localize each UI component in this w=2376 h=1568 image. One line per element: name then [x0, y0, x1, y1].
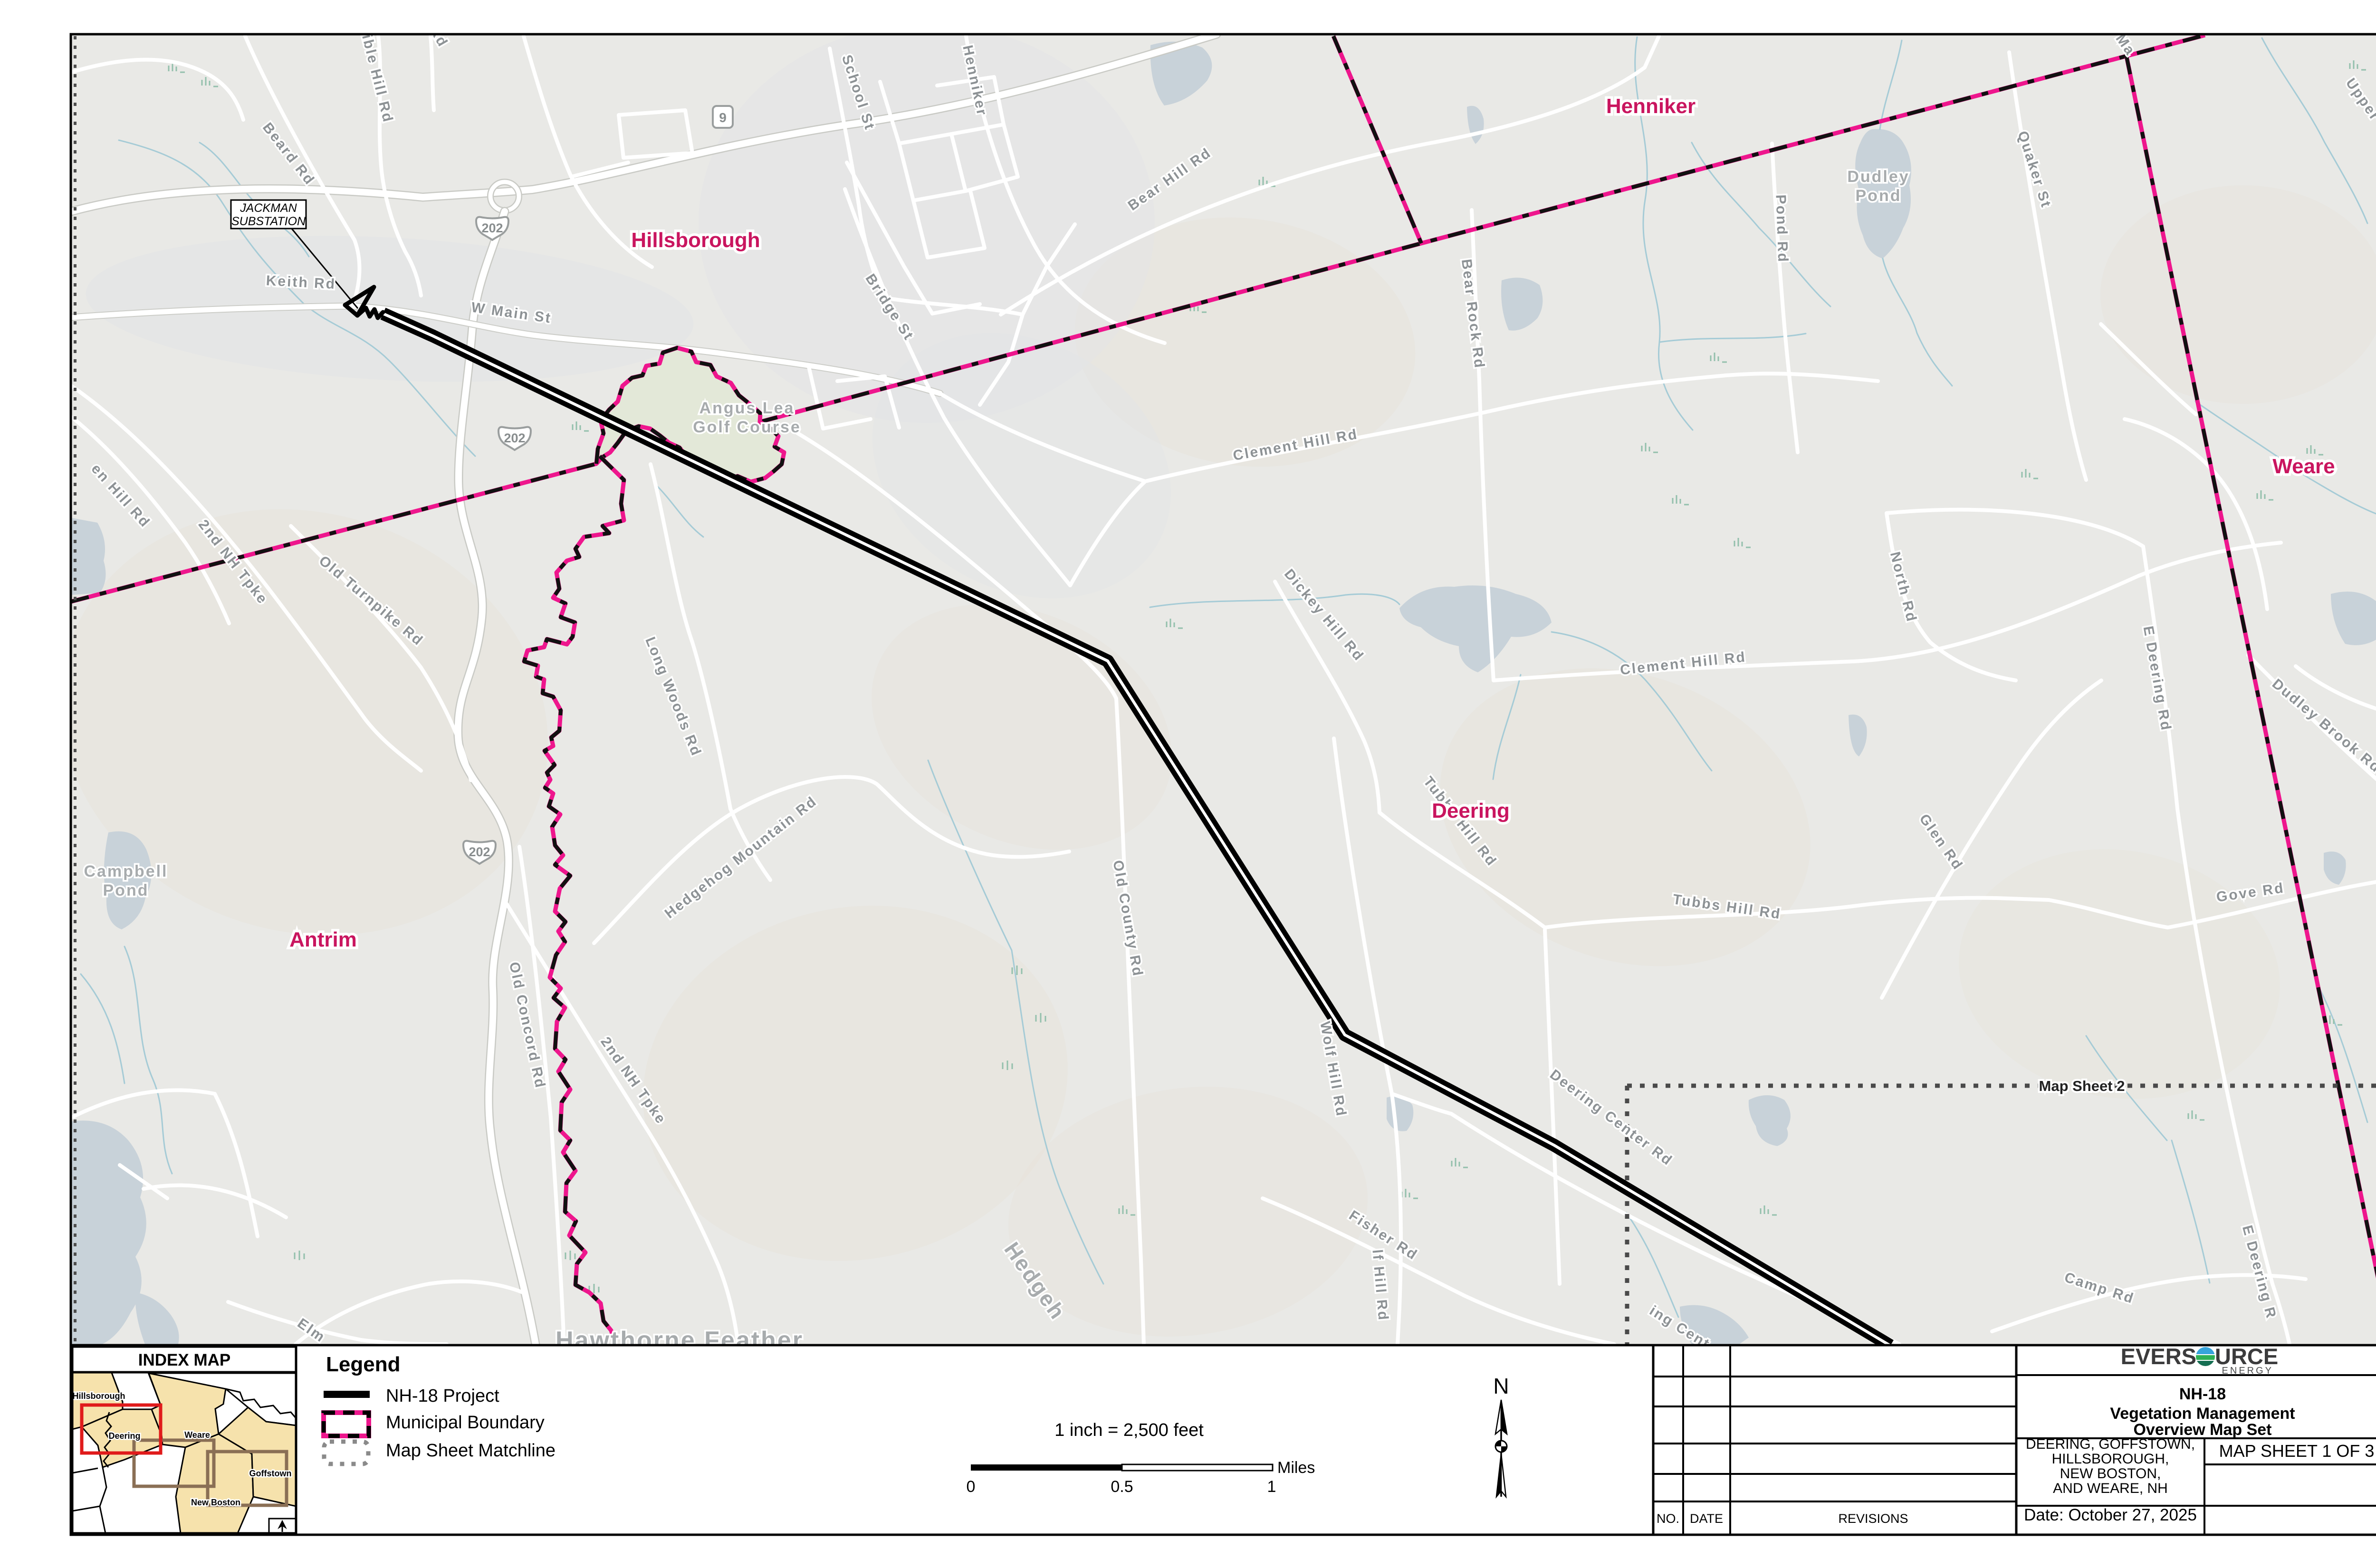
svg-text:DATE: DATE [1690, 1511, 1723, 1526]
svg-text:Pond Rd: Pond Rd [1772, 194, 1791, 263]
svg-text:ENERGY: ENERGY [2222, 1366, 2273, 1376]
svg-text:N: N [1493, 1374, 1509, 1398]
svg-text:Henniker: Henniker [1606, 95, 1696, 118]
svg-text:1: 1 [1267, 1478, 1276, 1496]
svg-text:Pond: Pond [103, 881, 149, 899]
svg-text:1 inch = 2,500 feet: 1 inch = 2,500 feet [1054, 1420, 1204, 1440]
svg-text:HILLSBOROUGH,: HILLSBOROUGH, [2052, 1451, 2169, 1467]
svg-text:9: 9 [719, 110, 727, 125]
svg-text:Deering: Deering [108, 1431, 140, 1441]
svg-text:202: 202 [469, 845, 490, 859]
svg-text:New Boston: New Boston [191, 1498, 240, 1507]
svg-text:Vegetation Management: Vegetation Management [2110, 1405, 2295, 1423]
svg-text:Hillsborough: Hillsborough [631, 229, 760, 252]
svg-text:Antrim: Antrim [289, 928, 357, 951]
svg-text:Deering: Deering [1432, 799, 1510, 822]
svg-text:Date: October 27, 2025: Date: October 27, 2025 [2024, 1506, 2197, 1524]
svg-text:Map Sheet 2: Map Sheet 2 [2039, 1078, 2125, 1094]
svg-text:Legend: Legend [326, 1353, 400, 1376]
svg-text:0: 0 [967, 1478, 976, 1496]
svg-text:Goffstown: Goffstown [249, 1469, 292, 1478]
svg-text:0.5: 0.5 [1111, 1478, 1133, 1496]
svg-text:Campbell: Campbell [84, 862, 168, 880]
svg-text:NEW BOSTON,: NEW BOSTON, [2060, 1466, 2161, 1482]
svg-text:EVERS: EVERS [2121, 1344, 2196, 1369]
svg-text:NO.: NO. [1657, 1511, 1679, 1526]
svg-text:Map Sheet Matchline: Map Sheet Matchline [386, 1441, 556, 1461]
svg-text:Weare: Weare [184, 1430, 210, 1440]
svg-text:Weare: Weare [2272, 455, 2335, 478]
svg-text:Hillsborough: Hillsborough [73, 1391, 125, 1401]
svg-text:MAP SHEET 1 OF 3: MAP SHEET 1 OF 3 [2219, 1441, 2375, 1461]
svg-text:SUBSTATION: SUBSTATION [231, 215, 306, 228]
svg-text:Pond: Pond [1856, 187, 1902, 205]
svg-text:202: 202 [481, 221, 503, 235]
svg-text:202: 202 [504, 431, 525, 445]
svg-text:Dudley: Dudley [1847, 168, 1909, 186]
svg-text:Golf Course: Golf Course [693, 418, 801, 436]
svg-text:Angus Lea: Angus Lea [699, 399, 795, 417]
svg-text:DEERING, GOFFSTOWN,: DEERING, GOFFSTOWN, [2026, 1436, 2195, 1452]
svg-text:JACKMAN: JACKMAN [240, 201, 297, 215]
svg-text:NH-18: NH-18 [2179, 1385, 2226, 1403]
svg-text:Miles: Miles [1277, 1459, 1315, 1477]
svg-text:INDEX MAP: INDEX MAP [138, 1351, 230, 1369]
svg-text:REVISIONS: REVISIONS [1838, 1511, 1908, 1526]
svg-text:AND WEARE, NH: AND WEARE, NH [2053, 1481, 2168, 1496]
svg-text:NH-18 Project: NH-18 Project [386, 1386, 499, 1406]
svg-text:Municipal Boundary: Municipal Boundary [386, 1413, 545, 1433]
